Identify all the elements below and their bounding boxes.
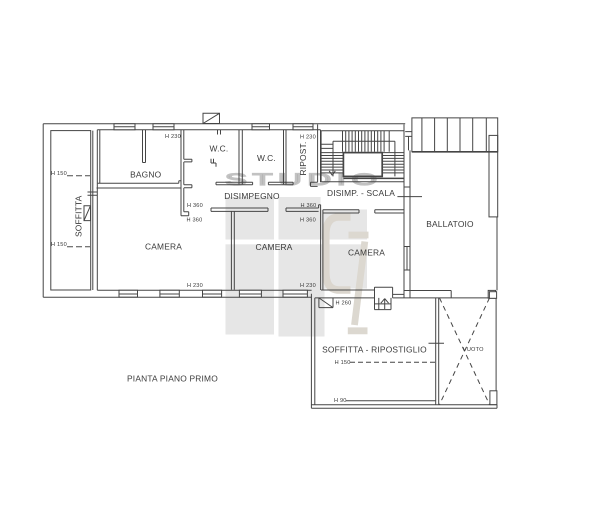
svg-text:H 230: H 230 (300, 283, 316, 289)
svg-text:H 90: H 90 (334, 398, 347, 404)
svg-text:SOFFITTA: SOFFITTA (74, 195, 84, 237)
svg-text:CAMERA: CAMERA (145, 241, 182, 251)
svg-text:H 230: H 230 (300, 135, 316, 141)
svg-text:H 230: H 230 (187, 283, 203, 289)
svg-text:H 260: H 260 (336, 301, 352, 307)
svg-text:SOFFITTA - RIPOSTIGLIO: SOFFITTA - RIPOSTIGLIO (322, 345, 427, 355)
svg-text:H 360: H 360 (301, 203, 317, 209)
svg-text:H 150: H 150 (335, 360, 351, 366)
svg-text:VUOTO: VUOTO (463, 347, 484, 353)
svg-text:DISIMP. - SCALA: DISIMP. - SCALA (327, 188, 395, 198)
svg-text:H 230: H 230 (165, 134, 181, 140)
svg-text:CAMERA: CAMERA (348, 248, 385, 258)
svg-text:RIPOST.: RIPOST. (298, 142, 308, 176)
svg-text:H 360: H 360 (300, 217, 316, 223)
svg-text:BALLATOIO: BALLATOIO (426, 219, 474, 229)
svg-text:H 150: H 150 (51, 242, 67, 248)
svg-text:W.C.: W.C. (257, 153, 276, 163)
svg-text:CAMERA: CAMERA (255, 242, 292, 252)
svg-text:H 360: H 360 (187, 203, 203, 209)
svg-text:DISIMPEGNO: DISIMPEGNO (224, 191, 280, 201)
svg-text:H 360: H 360 (187, 217, 203, 223)
svg-text:H 150: H 150 (51, 171, 67, 177)
svg-text:PIANTA PIANO PRIMO: PIANTA PIANO PRIMO (127, 374, 218, 384)
svg-text:BAGNO: BAGNO (130, 170, 162, 180)
svg-text:W.C.: W.C. (210, 143, 229, 153)
